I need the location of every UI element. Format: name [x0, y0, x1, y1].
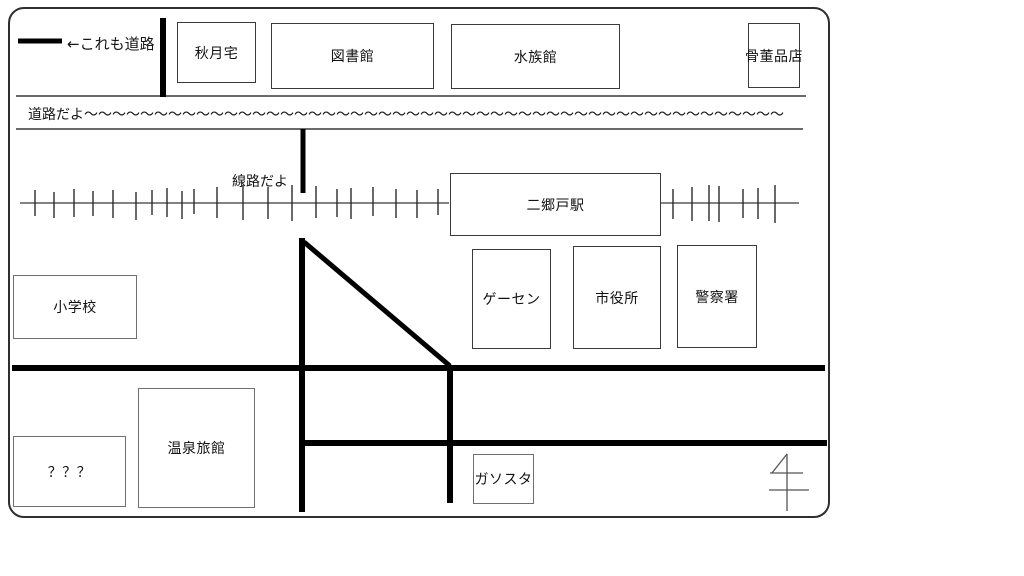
legend-road-label: ←これも道路: [67, 33, 155, 54]
building-antique-shop: 骨董品店: [748, 23, 800, 88]
hand-drawn-town-map: ←これも道路 道路だよ～～～～～～～～～～～～～～～～～～～～～～～～～～～～～…: [0, 0, 1024, 576]
road-diagonal-road: [304, 242, 450, 366]
building-label: 警察署: [695, 287, 739, 307]
building-label: 骨董品店: [745, 46, 803, 66]
building-game-center: ゲーセン: [472, 249, 551, 349]
road-name-label: 道路だよ～～～～～～～～～～～～～～～～～～～～～～～～～～～～～～～～～～～～…: [28, 104, 784, 124]
building-gas-station: ガソスタ: [473, 454, 534, 504]
building-label: 温泉旅館: [168, 438, 226, 458]
building-nigodo-station: 二郷戸駅: [450, 173, 661, 236]
building-label: ゲーセン: [483, 289, 541, 309]
building-unknown: ？？？: [13, 436, 126, 507]
building-label: 二郷戸駅: [527, 195, 585, 215]
building-label: 図書館: [331, 46, 375, 66]
building-police-station: 警察署: [677, 245, 757, 348]
building-label: 小学校: [53, 297, 97, 317]
building-label: 水族館: [514, 47, 558, 67]
north-mark-icon: [769, 454, 809, 511]
building-library: 図書館: [271, 23, 434, 89]
building-label: 市役所: [595, 288, 639, 308]
building-label: 秋月宅: [195, 43, 239, 63]
railway-name-label: 線路だよ: [232, 171, 288, 191]
building-akizuki-house: 秋月宅: [177, 22, 256, 83]
north-mark-stroke: [772, 454, 787, 473]
building-city-hall: 市役所: [573, 246, 661, 349]
building-aquarium: 水族館: [451, 24, 620, 89]
building-onsen-ryokan: 温泉旅館: [138, 388, 255, 508]
building-elementary-school: 小学校: [13, 275, 137, 339]
building-label: ガソスタ: [475, 469, 533, 489]
building-label: ？？？: [48, 462, 92, 482]
